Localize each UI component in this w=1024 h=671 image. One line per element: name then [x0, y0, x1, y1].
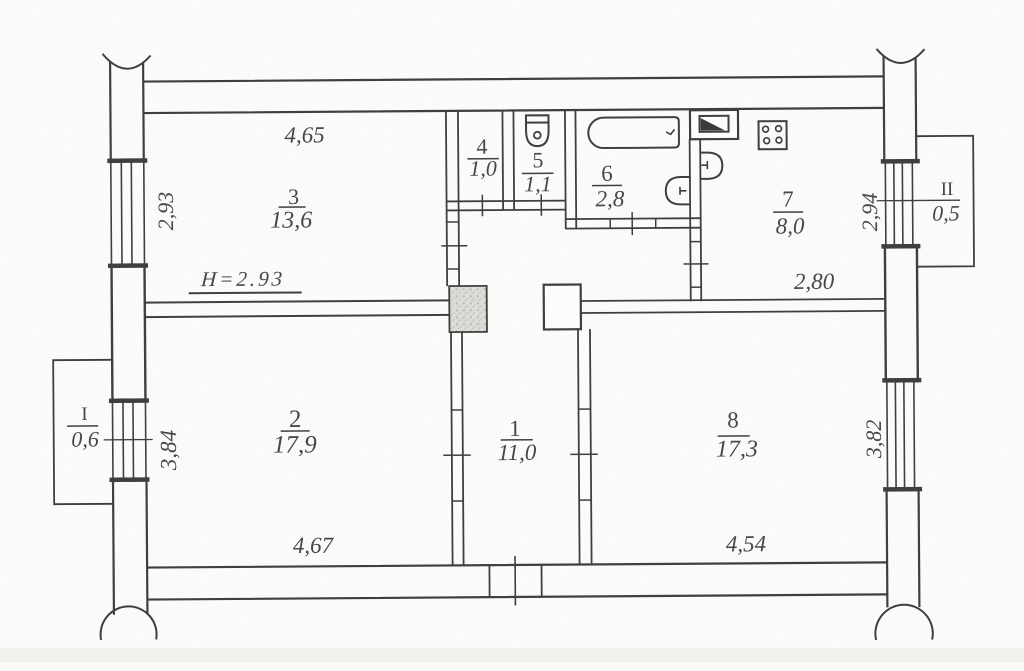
- svg-text:2,94: 2,94: [857, 193, 882, 232]
- svg-text:1,1: 1,1: [524, 171, 552, 196]
- svg-text:11,0: 11,0: [498, 440, 537, 465]
- svg-text:13,6: 13,6: [270, 207, 312, 233]
- svg-text:2,80: 2,80: [794, 269, 835, 294]
- svg-text:2,8: 2,8: [595, 186, 624, 211]
- svg-text:0,6: 0,6: [71, 426, 99, 451]
- svg-text:6: 6: [601, 161, 613, 186]
- svg-text:3: 3: [288, 184, 299, 209]
- svg-text:4,65: 4,65: [284, 122, 324, 147]
- svg-text:4,54: 4,54: [726, 531, 766, 556]
- svg-text:8,0: 8,0: [776, 213, 805, 238]
- svg-text:17,3: 17,3: [716, 436, 758, 462]
- svg-text:3,82: 3,82: [861, 420, 886, 460]
- svg-text:0,5: 0,5: [932, 200, 960, 225]
- svg-text:1: 1: [509, 416, 521, 441]
- svg-text:2,93: 2,93: [153, 192, 178, 231]
- svg-text:5: 5: [532, 147, 543, 172]
- svg-text:I: I: [81, 404, 87, 425]
- svg-text:Н=2.93: Н=2.93: [199, 267, 286, 292]
- svg-text:2: 2: [289, 406, 302, 433]
- svg-text:3,84: 3,84: [156, 430, 181, 471]
- svg-text:7: 7: [782, 187, 794, 212]
- svg-text:II: II: [941, 179, 954, 200]
- svg-text:8: 8: [727, 407, 739, 432]
- svg-text:4,67: 4,67: [293, 533, 335, 558]
- svg-text:17,9: 17,9: [273, 431, 317, 458]
